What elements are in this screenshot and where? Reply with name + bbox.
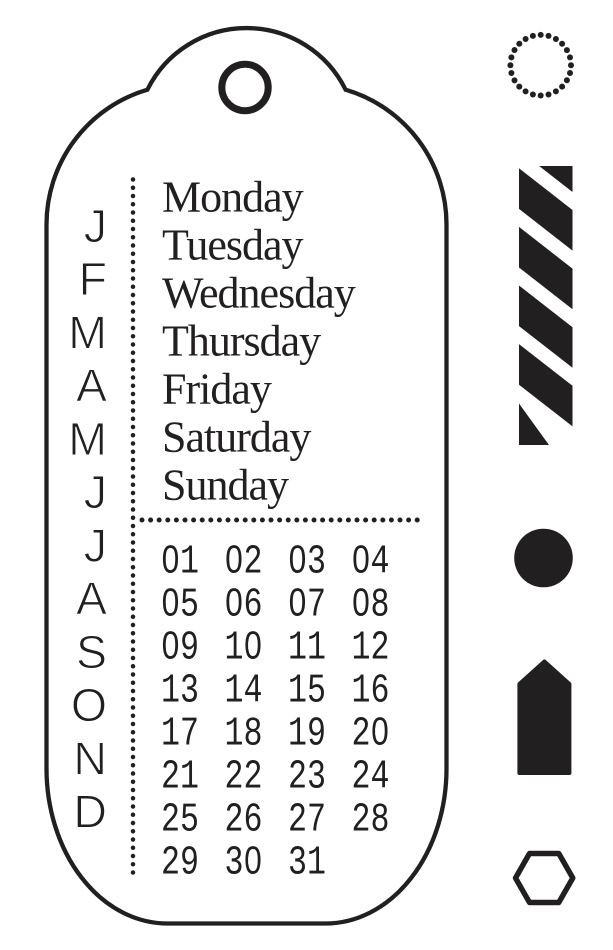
svg-text:13: 13 (161, 669, 199, 715)
svg-text:12: 12 (352, 626, 390, 672)
svg-text:Sunday: Sunday (162, 461, 289, 510)
svg-text:29: 29 (161, 841, 199, 887)
svg-text:14: 14 (225, 669, 263, 715)
svg-text:Saturday: Saturday (162, 413, 311, 462)
svg-text:20: 20 (352, 712, 390, 758)
svg-text:J: J (84, 200, 107, 252)
svg-text:26: 26 (225, 798, 263, 844)
svg-text:Friday: Friday (162, 365, 272, 414)
svg-text:15: 15 (288, 669, 326, 715)
svg-text:02: 02 (225, 540, 263, 586)
svg-text:28: 28 (352, 798, 390, 844)
svg-text:31: 31 (288, 841, 326, 887)
svg-text:Wednesday: Wednesday (162, 269, 356, 318)
svg-text:N: N (73, 732, 107, 784)
svg-text:23: 23 (288, 755, 326, 801)
svg-text:M: M (68, 306, 107, 358)
svg-text:O: O (71, 679, 107, 731)
svg-text:Monday: Monday (162, 173, 304, 222)
svg-text:27: 27 (288, 798, 326, 844)
svg-text:21: 21 (161, 755, 199, 801)
svg-text:16: 16 (352, 669, 390, 715)
svg-text:F: F (79, 253, 107, 305)
svg-text:06: 06 (225, 583, 263, 629)
svg-text:18: 18 (225, 712, 263, 758)
svg-text:03: 03 (288, 540, 326, 586)
svg-text:A: A (76, 360, 107, 412)
svg-text:30: 30 (225, 841, 263, 887)
svg-text:J: J (84, 519, 107, 571)
svg-text:D: D (73, 786, 107, 838)
svg-text:10: 10 (225, 626, 263, 672)
svg-text:17: 17 (161, 712, 199, 758)
svg-text:S: S (76, 626, 107, 678)
svg-text:M: M (68, 413, 107, 465)
svg-text:19: 19 (288, 712, 326, 758)
svg-text:24: 24 (352, 755, 390, 801)
svg-text:A: A (76, 573, 107, 625)
svg-text:Tuesday: Tuesday (162, 221, 304, 270)
svg-text:25: 25 (161, 798, 199, 844)
svg-text:05: 05 (161, 583, 199, 629)
svg-text:09: 09 (161, 626, 199, 672)
svg-text:04: 04 (352, 540, 390, 586)
svg-text:08: 08 (352, 583, 390, 629)
svg-text:11: 11 (288, 626, 326, 672)
svg-text:22: 22 (225, 755, 263, 801)
svg-text:07: 07 (288, 583, 326, 629)
svg-text:Thursday: Thursday (162, 317, 321, 366)
svg-text:01: 01 (161, 540, 199, 586)
svg-text:J: J (84, 466, 107, 518)
